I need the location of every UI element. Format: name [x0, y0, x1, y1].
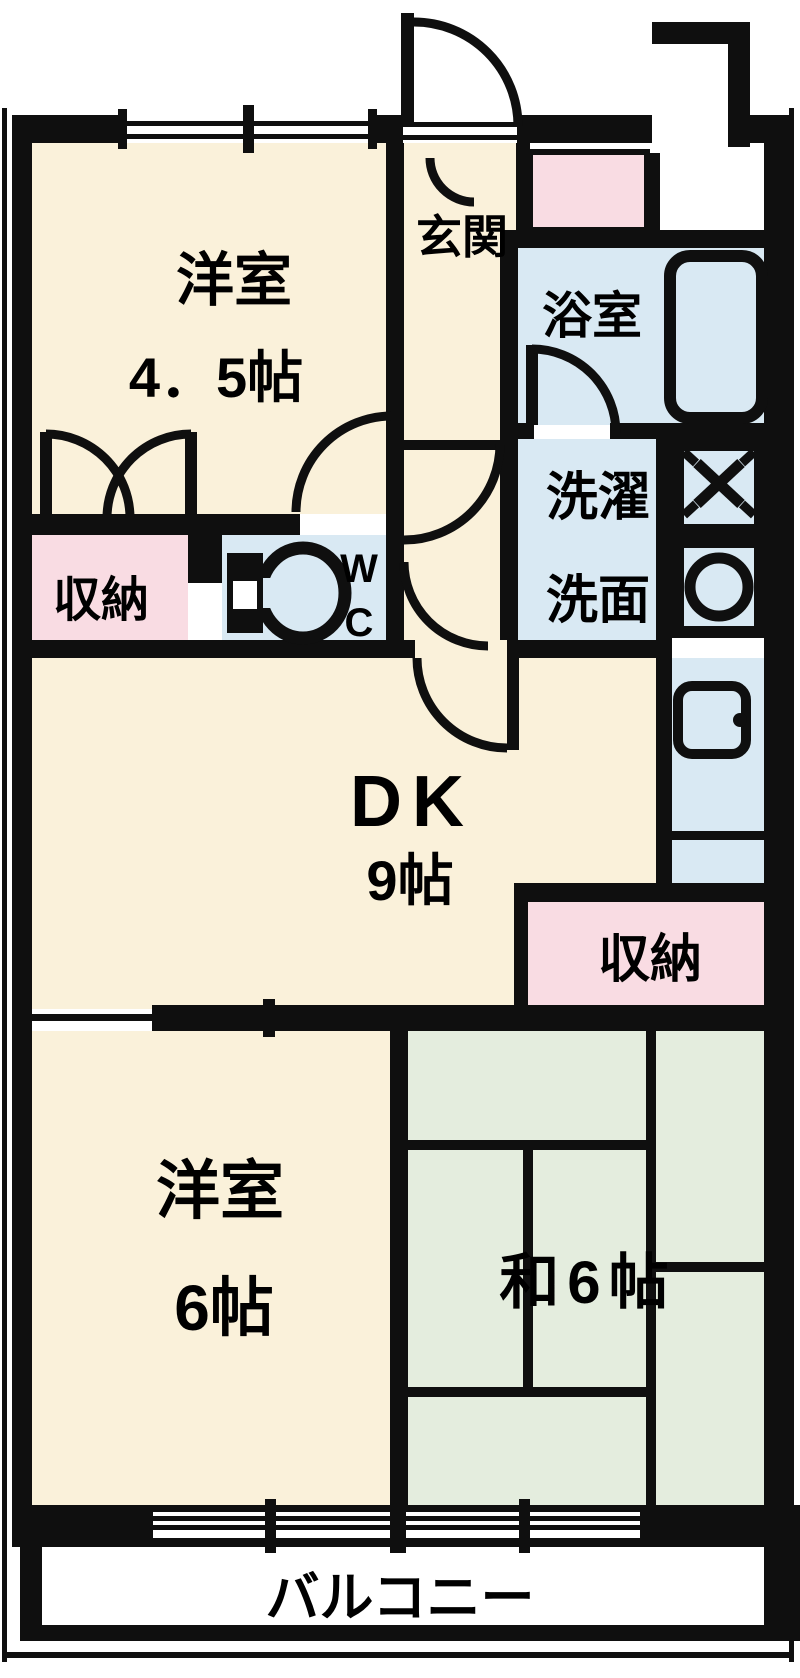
stove-x-icon: [672, 439, 766, 536]
label-western-room-1-size: 4．5帖: [129, 346, 303, 409]
label-storage-1: 収納: [53, 574, 149, 627]
closet-door-leaf-right: [185, 432, 197, 517]
tatami-line-h-upper: [408, 1140, 651, 1150]
toilet-bowl-gap: [261, 578, 275, 608]
label-western-room-1: 洋室: [176, 248, 292, 313]
wall-wr1-bottom: [32, 514, 300, 535]
wall-porch-left: [645, 153, 660, 230]
label-storage-2: 収納: [598, 931, 702, 989]
entrance-threshold: [403, 122, 517, 140]
wall-dk-south-tick: [263, 999, 275, 1037]
dk-floor-upper: [32, 658, 656, 885]
counter-faucet-dot: [733, 713, 747, 727]
entrance-door-arc: [414, 22, 518, 126]
label-laundry-line2: 洗面: [546, 572, 650, 630]
wall-bath-top: [516, 230, 792, 248]
wall-storage1-wc: [188, 535, 222, 583]
shoe-cabinet-box: [530, 152, 647, 230]
label-laundry-line1: 洗濯: [546, 469, 650, 527]
window-bottom-tick3: [519, 1499, 530, 1553]
outer-thin-line-left: [2, 108, 7, 1662]
wall-dk-top-right: [507, 640, 664, 658]
label-bathroom: 浴室: [542, 288, 642, 344]
tatami-line-h-lower: [408, 1387, 651, 1397]
closet-door-leaf-left: [40, 432, 52, 517]
entrance-door-leaf: [401, 13, 414, 127]
window-top-tick1: [118, 109, 127, 149]
label-entrance: 玄関: [416, 211, 508, 263]
western-room-1-floor: [32, 143, 386, 514]
window-bottom-tick2: [390, 1499, 406, 1553]
wall-balcony-corner: [764, 1505, 800, 1641]
outer-thin-line-bottom: [2, 1652, 794, 1658]
floorplan-canvas: 玄関 洋室 4．5帖 浴室 洗濯 洗面 W C 収納 DK 9帖 収納 洋室 6…: [0, 0, 800, 1678]
wall-outer-left: [12, 115, 32, 1542]
wall-hall-left: [386, 143, 404, 658]
counter-divider-line: [672, 831, 764, 840]
label-wc-c: C: [345, 601, 374, 645]
label-balcony: バルコニー: [266, 1568, 535, 1628]
hall-door-leaf: [404, 440, 502, 450]
wall-dk-south-open-line: [32, 1014, 152, 1021]
wall-bath-bottom-right: [610, 423, 768, 439]
wall-dk-south: [152, 1005, 792, 1031]
wall-outer-right: [764, 143, 792, 1505]
wall-bath-bottom-left: [500, 423, 534, 439]
window-bottom: [153, 1499, 640, 1553]
threshold-line1: [403, 122, 517, 127]
floorplan-svg: 玄関 洋室 4．5帖 浴室 洗濯 洗面 W C 収納 DK 9帖 収納 洋室 6…: [0, 0, 800, 1678]
western-room-2-floor: [32, 1031, 390, 1505]
label-dk: DK: [350, 762, 474, 842]
wall-entrance-shoebox: [516, 143, 530, 230]
wall-bottom-right: [640, 1505, 764, 1547]
label-japanese-room: 和6帖: [499, 1249, 676, 1316]
window-top-tick3: [368, 109, 377, 149]
window-bottom-tick1: [265, 1499, 276, 1553]
dk-door-leaf: [507, 658, 519, 750]
label-dk-size: 9帖: [366, 849, 453, 912]
wall-bottom-left: [12, 1505, 153, 1547]
parapet-right-bar: [728, 22, 750, 147]
threshold-line2: [403, 135, 517, 140]
wall-storage2-left: [514, 883, 528, 1009]
label-wc-w: W: [340, 547, 378, 591]
window-top-tick2: [243, 105, 254, 153]
wall-top-right-1: [517, 115, 652, 143]
wall-lower-divider: [390, 1031, 408, 1505]
wall-storage2-top: [514, 883, 792, 902]
label-western-room-2-size: 6帖: [174, 1272, 274, 1344]
label-western-room-2: 洋室: [156, 1155, 284, 1227]
bath-door-leaf: [526, 345, 538, 425]
wr1-door-leaf: [387, 414, 399, 514]
toilet-tank-inner: [233, 581, 257, 609]
sink-circle-icon: [672, 536, 766, 638]
